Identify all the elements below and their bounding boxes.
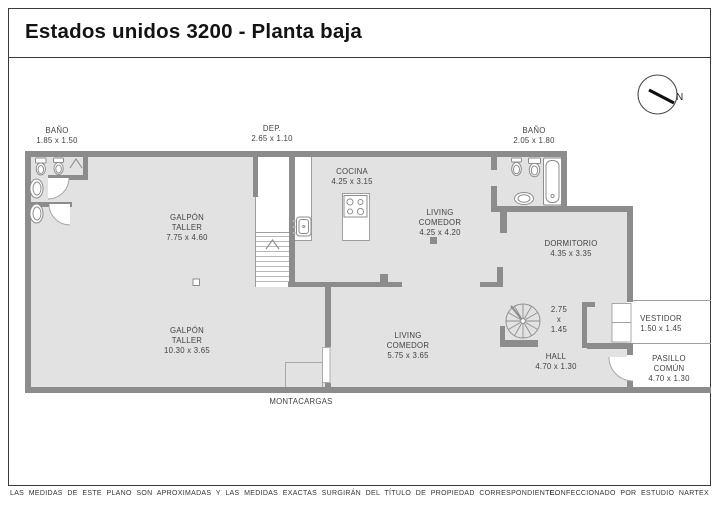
room-label-montacargas: MONTACARGAS [269,397,332,407]
compass-north-label: N [676,92,683,103]
footer-credit: CONFECCIONADO POR ESTUDIO NARTEX [550,490,709,497]
room-label-galpon-taller-1: GALPÓNTALLER7.75 x 4.60 [166,213,207,242]
floor-plan-page: Estados unidos 3200 - Planta baja [0,0,720,509]
sink-icon [515,193,534,205]
room-label-dep: DEP.2.65 x 1.10 [251,124,292,144]
bidet-icon [54,158,64,175]
door-leaf-icon [323,348,331,383]
footer-disclaimer: LAS MEDIDAS DE ESTE PLANO SON APROXIMADA… [10,490,557,497]
room-label-hall: HALL4.70 x 1.30 [535,352,576,372]
stove-icon [344,196,367,218]
room-label-escalera: 2.75x1.45 [551,305,567,334]
door-arc-icon [48,178,69,199]
room-label-galpon-taller-2: GALPÓNTALLER10.30 x 3.65 [164,326,210,355]
room-label-dormitorio: DORMITORIO4.35 x 3.35 [544,239,597,259]
entry-arrow-icon [70,159,82,168]
room-label-living-comedor-1: LIVINGCOMEDOR4.25 x 4.20 [419,208,461,237]
staircase-icon [256,237,289,282]
bathtub-icon [544,158,562,205]
room-label-living-comedor-2: LIVINGCOMEDOR5.75 x 3.65 [387,331,429,360]
closet-door-icon [612,304,631,343]
wall-sink-icon [30,204,43,223]
kitchen-sink-icon [293,217,311,236]
toilet-icon [529,158,541,177]
room-label-bano-right: BAÑO2.05 x 1.80 [513,126,554,146]
bidet-icon [512,158,522,176]
room-label-bano-left: BAÑO1.85 x 1.50 [36,126,77,146]
room-label-pasillo-comun: PASILLOCOMÚN4.70 x 1.30 [648,354,689,383]
room-label-cocina: COCINA4.25 x 3.15 [331,167,372,187]
room-label-vestidor: VESTIDOR1.50 x 1.45 [640,314,682,334]
fixtures-layer [0,0,720,509]
toilet-icon [36,158,47,175]
spiral-staircase-icon [506,304,540,338]
column [193,279,200,286]
wall-sink-icon [30,179,43,198]
door-arc-icon [609,357,633,381]
compass-icon [638,75,677,114]
door-arc-icon [49,204,70,225]
